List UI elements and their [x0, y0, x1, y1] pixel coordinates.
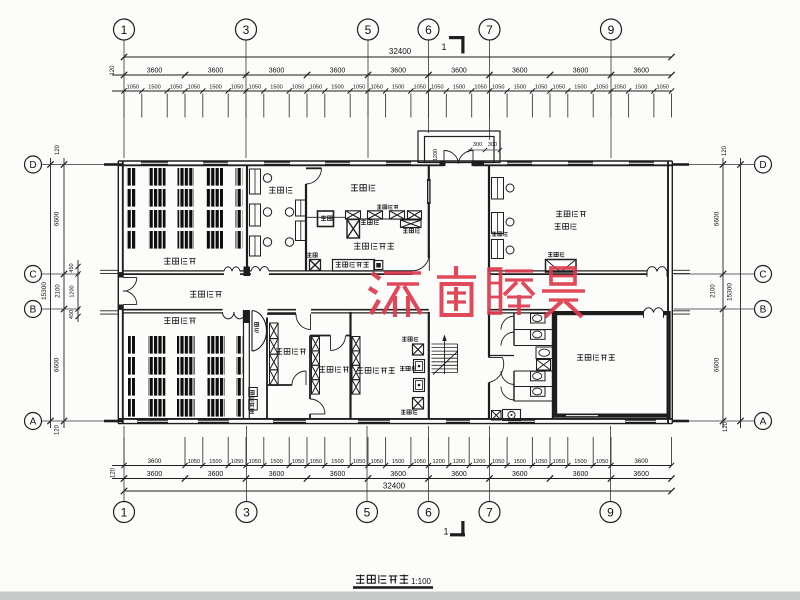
svg-text:1050: 1050 [492, 85, 504, 91]
svg-text:1200: 1200 [473, 459, 485, 465]
svg-text:1050: 1050 [596, 85, 608, 91]
svg-text:1050: 1050 [188, 459, 200, 465]
svg-text:1500: 1500 [331, 459, 343, 465]
svg-text:120: 120 [723, 421, 729, 432]
svg-text:D: D [29, 160, 36, 171]
svg-text:1050: 1050 [535, 85, 547, 91]
svg-text:1050: 1050 [310, 85, 322, 91]
svg-text:D: D [759, 160, 766, 171]
svg-text:1: 1 [443, 527, 448, 537]
svg-text:1500: 1500 [514, 85, 526, 91]
svg-text:120: 120 [55, 424, 61, 435]
svg-text:6600: 6600 [714, 357, 721, 372]
svg-text:3600: 3600 [330, 471, 346, 478]
svg-text:1500: 1500 [635, 85, 647, 91]
svg-text:3600: 3600 [147, 67, 163, 74]
svg-text:7: 7 [486, 505, 493, 519]
svg-text:1050: 1050 [127, 85, 139, 91]
svg-text:1200: 1200 [453, 459, 465, 465]
svg-text:450: 450 [69, 263, 75, 272]
svg-text:120: 120 [55, 144, 61, 155]
svg-text:3600: 3600 [148, 458, 162, 465]
svg-text:9: 9 [608, 23, 615, 37]
svg-text:3600: 3600 [390, 67, 406, 74]
svg-text:1050: 1050 [413, 85, 425, 91]
svg-text:3600: 3600 [573, 67, 589, 74]
svg-text:1050: 1050 [535, 459, 547, 465]
svg-text:1500: 1500 [574, 459, 586, 465]
svg-text:120: 120 [110, 65, 116, 76]
svg-text:1050: 1050 [553, 85, 565, 91]
svg-text:6: 6 [425, 23, 432, 37]
svg-text:32400: 32400 [383, 481, 406, 490]
svg-text:1500: 1500 [574, 85, 586, 91]
svg-text:1050: 1050 [371, 459, 383, 465]
svg-text:3600: 3600 [633, 471, 649, 478]
svg-text:1500: 1500 [392, 85, 404, 91]
svg-text:3600: 3600 [330, 67, 346, 74]
svg-text:1050: 1050 [292, 85, 304, 91]
svg-text:1050: 1050 [231, 459, 243, 465]
svg-text:300: 300 [488, 142, 497, 148]
svg-text:1500: 1500 [209, 85, 221, 91]
svg-text:3600: 3600 [451, 471, 467, 478]
svg-text:3600: 3600 [512, 471, 528, 478]
svg-text:450: 450 [69, 310, 75, 319]
svg-text:2100: 2100 [711, 284, 717, 298]
svg-text:1200: 1200 [433, 149, 439, 161]
svg-text:1200: 1200 [432, 459, 444, 465]
svg-text:1500: 1500 [270, 459, 282, 465]
svg-text:120: 120 [722, 145, 728, 156]
svg-text:120: 120 [111, 467, 117, 478]
svg-text:1050: 1050 [170, 85, 182, 91]
svg-text:1050: 1050 [492, 459, 504, 465]
svg-text:3600: 3600 [573, 471, 589, 478]
svg-text:1: 1 [441, 42, 446, 52]
svg-text:1050: 1050 [310, 459, 322, 465]
svg-text:1:100: 1:100 [411, 577, 432, 586]
svg-text:1050: 1050 [474, 85, 486, 91]
svg-text:B: B [30, 305, 37, 316]
svg-text:7: 7 [486, 23, 493, 37]
svg-text:5: 5 [365, 23, 372, 37]
svg-text:3600: 3600 [147, 471, 163, 478]
svg-text:3: 3 [243, 23, 250, 37]
svg-text:1500: 1500 [392, 459, 404, 465]
svg-text:A: A [30, 417, 37, 428]
svg-text:3600: 3600 [633, 67, 649, 74]
svg-text:1050: 1050 [614, 85, 626, 91]
svg-text:1050: 1050 [249, 85, 261, 91]
svg-text:1050: 1050 [249, 459, 261, 465]
svg-text:1: 1 [121, 23, 128, 37]
svg-text:1: 1 [121, 505, 128, 519]
svg-text:1500: 1500 [148, 85, 160, 91]
svg-text:15300: 15300 [41, 282, 48, 300]
svg-text:1050: 1050 [188, 85, 200, 91]
svg-text:3: 3 [243, 505, 250, 519]
svg-text:1500: 1500 [209, 459, 221, 465]
svg-text:3600: 3600 [451, 67, 467, 74]
svg-text:C: C [759, 270, 766, 281]
svg-text:1500: 1500 [270, 85, 282, 91]
svg-text:1500: 1500 [514, 459, 526, 465]
svg-text:6600: 6600 [54, 211, 61, 226]
svg-text:3600: 3600 [512, 67, 528, 74]
svg-text:3600: 3600 [390, 471, 406, 478]
svg-text:3600: 3600 [208, 471, 224, 478]
svg-text:2100: 2100 [56, 284, 62, 298]
svg-text:15300: 15300 [727, 283, 734, 301]
svg-text:1050: 1050 [553, 459, 565, 465]
svg-text:B: B [760, 305, 767, 316]
svg-text:C: C [29, 270, 36, 281]
svg-text:6600: 6600 [714, 211, 721, 226]
svg-text:9: 9 [607, 505, 614, 519]
svg-text:1050: 1050 [353, 459, 365, 465]
svg-text:5: 5 [364, 505, 371, 519]
svg-text:1050: 1050 [292, 459, 304, 465]
svg-text:1500: 1500 [331, 85, 343, 91]
svg-text:6600: 6600 [54, 357, 61, 372]
svg-text:3600: 3600 [269, 471, 285, 478]
svg-text:1500: 1500 [453, 85, 465, 91]
svg-text:1050: 1050 [656, 85, 668, 91]
svg-text:1050: 1050 [596, 459, 608, 465]
svg-text:6: 6 [425, 505, 432, 519]
svg-text:300: 300 [473, 142, 482, 148]
svg-text:1050: 1050 [431, 85, 443, 91]
svg-text:3600: 3600 [634, 458, 648, 465]
svg-text:1050: 1050 [353, 85, 365, 91]
svg-text:32400: 32400 [389, 47, 412, 56]
svg-text:3600: 3600 [269, 67, 285, 74]
svg-text:1050: 1050 [371, 85, 383, 91]
svg-text:1050: 1050 [413, 459, 425, 465]
svg-text:3600: 3600 [208, 67, 224, 74]
svg-text:1200: 1200 [70, 285, 76, 297]
svg-text:A: A [760, 417, 767, 428]
svg-text:1050: 1050 [231, 85, 243, 91]
